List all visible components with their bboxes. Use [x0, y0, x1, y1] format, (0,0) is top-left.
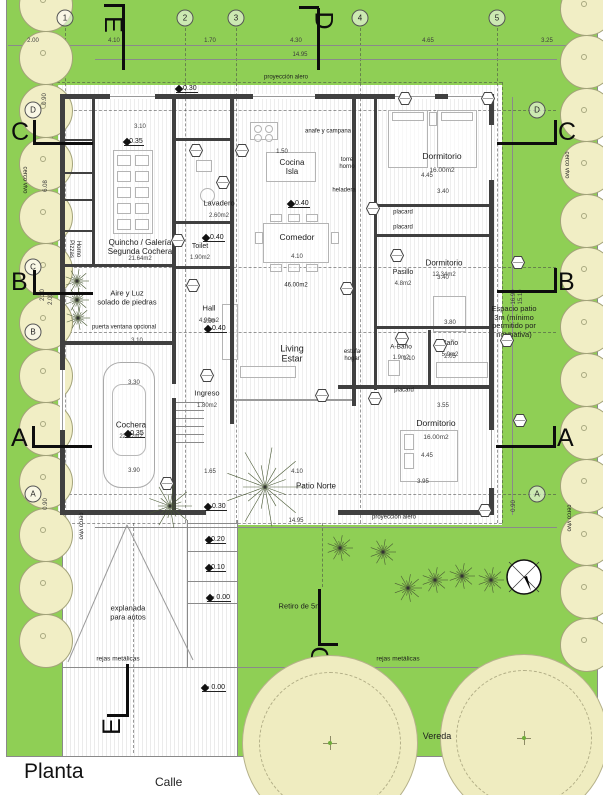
furniture [255, 232, 263, 244]
room-label: Living Estar [280, 344, 304, 365]
dimension-label: 4.65 [422, 38, 434, 44]
furniture [288, 214, 300, 222]
door-window-tag-icon [315, 389, 329, 402]
dimension-label: 3.25 [541, 38, 553, 44]
room-label: Patio Norte [296, 481, 336, 490]
dimension-label: 4.10 [291, 469, 303, 475]
door-window-tag-icon [368, 392, 382, 405]
door-window-tag-icon [200, 369, 214, 382]
room-area-label: 2.60m2 [209, 213, 229, 220]
section-marker: C [11, 118, 29, 147]
quincho-seat [117, 155, 131, 166]
level-value: + 0.40 [205, 325, 227, 333]
patio-glazing [234, 399, 352, 401]
door-window-tag-icon [340, 282, 354, 295]
wall [377, 204, 492, 207]
shrub-icon [370, 539, 396, 565]
annotation: cerco vivo [565, 504, 572, 531]
dimension-label: 14.95 [292, 52, 307, 58]
wall [374, 326, 494, 329]
door-window-tag-icon [478, 504, 492, 517]
section-marker-line [318, 589, 321, 644]
section-marker: A [557, 424, 574, 453]
section-marker-line [107, 714, 129, 717]
room-label: Cochera [116, 420, 146, 429]
furniture [404, 434, 414, 450]
room-label: Cocina Isla [280, 158, 305, 176]
level-value: +0.20 [206, 536, 226, 544]
annotation: anafe y campana [305, 129, 351, 136]
quincho-seat [135, 171, 149, 182]
hedge-circle-icon [19, 561, 73, 615]
furniture [196, 160, 212, 172]
furniture [392, 112, 424, 121]
annotation: torre horno [339, 157, 354, 171]
furniture [404, 453, 414, 469]
door-window-tag-icon [390, 249, 404, 262]
plan-layers: Quincho / Galería Segunda Cochera21.64m2… [0, 0, 603, 795]
wall [60, 341, 176, 345]
hedge-circle-icon [19, 508, 73, 562]
furniture [270, 264, 282, 272]
grid-bubble: D [529, 102, 546, 119]
quincho-seat [117, 171, 131, 182]
annotation: puerta ventana opcional [92, 325, 156, 332]
wall [377, 234, 492, 237]
door-window-tag-icon [366, 202, 380, 215]
dimension-label: 0.90 [43, 498, 49, 510]
window [491, 430, 492, 488]
room-label: Hall [203, 305, 216, 314]
section-marker: B [11, 268, 28, 297]
room-area-label: 21.64m2 [128, 256, 151, 263]
room-label: placard [394, 388, 414, 395]
dimension-label: 1.65 [204, 469, 216, 475]
door-window-tag-icon [481, 92, 495, 105]
door-window-tag-icon [513, 414, 527, 427]
stove-burner-icon [265, 134, 273, 142]
floor-plan: Quincho / Galería Segunda Cochera21.64m2… [0, 0, 603, 795]
annotation: cerco vivo [563, 151, 570, 178]
annotation: cerco vivo [21, 166, 28, 193]
wall [230, 94, 234, 424]
shrub-icon [225, 447, 305, 527]
level-value: +- 0.00 [207, 594, 231, 602]
shrub-icon [422, 567, 448, 593]
level-value: +0.35 [124, 138, 144, 146]
quincho-seat [135, 203, 149, 214]
shrub-icon [66, 306, 90, 330]
section-marker-line [32, 445, 92, 448]
dimension-label: 6.08 [43, 180, 49, 192]
dimension-label: 0.90 [42, 93, 48, 105]
section-marker-line [299, 6, 319, 9]
furniture [288, 264, 300, 272]
section-marker: D [309, 11, 338, 29]
window [62, 370, 63, 430]
section-marker-line [317, 8, 320, 70]
annotation: cerco vivo [77, 512, 84, 539]
section-marker-line [33, 142, 93, 145]
door-window-tag-icon [160, 477, 174, 490]
window [110, 96, 155, 97]
grid-bubble: B [25, 324, 42, 341]
section-marker-line [122, 6, 125, 70]
furniture [331, 232, 339, 244]
section-marker-line [318, 643, 338, 646]
dimension-label: 3.90 [128, 468, 140, 474]
level-value: + 0.40 [203, 234, 225, 242]
room-label: Dormitorio [422, 152, 461, 162]
room-label: Lavadero [203, 200, 234, 209]
room-label: Dormitorio [426, 258, 463, 267]
level-value: +0.10 [206, 564, 226, 572]
annotation: 46.00m2 [284, 283, 307, 290]
annotation: Horno Pizzas [67, 240, 81, 258]
annotation: estufa hogar [344, 349, 360, 363]
furniture [240, 366, 296, 378]
dimension-label: 3.40 [437, 189, 449, 195]
section-marker-line [104, 4, 125, 7]
dimension-label: 2.00 [27, 38, 39, 44]
room-label: Dormitorio [416, 419, 455, 429]
room-label: placard [393, 225, 413, 232]
annotation: rejas metálicas [376, 655, 419, 662]
annotation: heladera [332, 188, 355, 195]
wall [60, 139, 92, 141]
dimension-label: 1.50 [203, 319, 215, 325]
grid-bubble: A [25, 486, 42, 503]
wall [60, 230, 92, 232]
dimension-label: 0.90 [511, 500, 517, 512]
dimension-label: 3.95 [417, 479, 429, 485]
level-value: + 0.30 [176, 85, 198, 93]
dimension-label: 4.30 [290, 38, 302, 44]
annotation: proyección alero [372, 515, 416, 522]
room-label: placard [393, 210, 413, 217]
shrub-icon [327, 535, 353, 561]
level-value: +- 0.00 [202, 684, 226, 692]
dimension-label: 2.20 [40, 289, 46, 301]
furniture [306, 214, 318, 222]
room-label: Ingreso [194, 390, 219, 399]
annotation: proyección alero [264, 75, 308, 82]
furniture [429, 112, 437, 126]
grid-bubble: A [529, 486, 546, 503]
level-value: + 0.30 [205, 503, 227, 511]
dimension-label: 4.10 [291, 254, 303, 260]
wall [374, 94, 377, 390]
quincho-seat [135, 155, 149, 166]
stove-burner-icon [254, 134, 262, 142]
dimension-label: 2.05 [444, 354, 456, 360]
wall [428, 330, 431, 387]
furniture [270, 214, 282, 222]
window [448, 96, 484, 97]
window [491, 125, 492, 180]
door-window-tag-icon [433, 339, 447, 352]
wall [172, 138, 234, 141]
grid-bubble: D [25, 102, 42, 119]
door-window-tag-icon [216, 176, 230, 189]
dimension-label: 3.55 [437, 403, 449, 409]
wall [60, 264, 176, 267]
wall [60, 172, 92, 174]
annotation: rejas metálicas [96, 655, 139, 662]
compass-icon [506, 559, 542, 595]
room-label: Quincho / Galería Segunda Cochera [108, 238, 173, 256]
section-marker: C [558, 118, 576, 147]
quincho-seat [117, 203, 131, 214]
quincho-seat [135, 219, 149, 230]
section-marker-line [33, 292, 93, 295]
dimension-label: 1.70 [204, 38, 216, 44]
dimension-label: 4.10 [108, 38, 120, 44]
dimension-label: 3.10 [131, 338, 143, 344]
window [253, 96, 315, 97]
door-window-tag-icon [189, 144, 203, 157]
dimension-label: 3.30 [128, 380, 140, 386]
grid-bubble: 1 [57, 10, 74, 27]
shrub-icon [148, 484, 192, 528]
wall [172, 221, 234, 224]
section-marker-line [496, 445, 556, 448]
room-label: explanada para autos [110, 604, 145, 621]
section-marker-line [497, 290, 557, 293]
section-marker-line [497, 142, 557, 145]
furniture [441, 112, 473, 121]
hedge-circle-icon [19, 614, 73, 668]
door-window-tag-icon [500, 334, 514, 347]
furniture [436, 362, 488, 378]
room-label: Pasillo [393, 269, 414, 277]
section-marker: A [11, 424, 28, 453]
room-area-label: 4.8m2 [395, 281, 412, 288]
door-window-tag-icon [235, 144, 249, 157]
room-area-label: 1.80m2 [197, 403, 217, 410]
quincho-seat [117, 187, 131, 198]
shrub-icon [478, 567, 504, 593]
level-value: +0.35 [125, 430, 145, 438]
quincho-seat [135, 187, 149, 198]
stove-burner-icon [265, 125, 273, 133]
level-value: + 0.40 [288, 200, 310, 208]
room-label: Aire y Luz solado de piedras [97, 289, 156, 306]
wall [172, 266, 234, 269]
section-marker: E [98, 718, 127, 735]
dimension-label: 3.40 [437, 275, 449, 281]
shrub-icon [394, 574, 422, 602]
furniture [388, 360, 400, 376]
dimension-label: 3.10 [134, 124, 146, 130]
dimension-label: 14.95 [288, 518, 303, 524]
quincho-seat [117, 219, 131, 230]
stove-burner-icon [254, 125, 262, 133]
room-label: Comedor [280, 233, 315, 243]
door-window-tag-icon [186, 279, 200, 292]
annotation: Retiro de 5m [279, 603, 322, 612]
furniture [306, 264, 318, 272]
door-window-tag-icon [395, 332, 409, 345]
dimension-label: 4.45 [421, 173, 433, 179]
grid-bubble: 2 [177, 10, 194, 27]
door-window-tag-icon [511, 256, 525, 269]
dimension-label: 1.10 [403, 356, 415, 362]
shrub-icon [449, 563, 475, 589]
dimension-label: 4.45 [421, 453, 433, 459]
grid-bubble: 4 [352, 10, 369, 27]
wall [60, 199, 92, 201]
grid-bubble: 5 [489, 10, 506, 27]
door-window-tag-icon [171, 234, 185, 247]
door-window-tag-icon [398, 92, 412, 105]
sidewalk-label: Vereda [423, 731, 452, 741]
dimension-label: 3.80 [444, 320, 456, 326]
grid-bubble: 3 [228, 10, 245, 27]
room-area-label: 16.00m2 [423, 434, 448, 441]
section-marker: B [558, 268, 575, 297]
room-label: Espacio patio 3m (mínimo permitido por n… [491, 305, 536, 340]
wall [338, 385, 494, 389]
section-marker-line [126, 664, 129, 714]
wall [92, 94, 95, 266]
room-label: Toilet [192, 243, 208, 251]
dimension-label: 1.50 [276, 149, 288, 155]
room-area-label: 1.90m2 [190, 255, 210, 262]
